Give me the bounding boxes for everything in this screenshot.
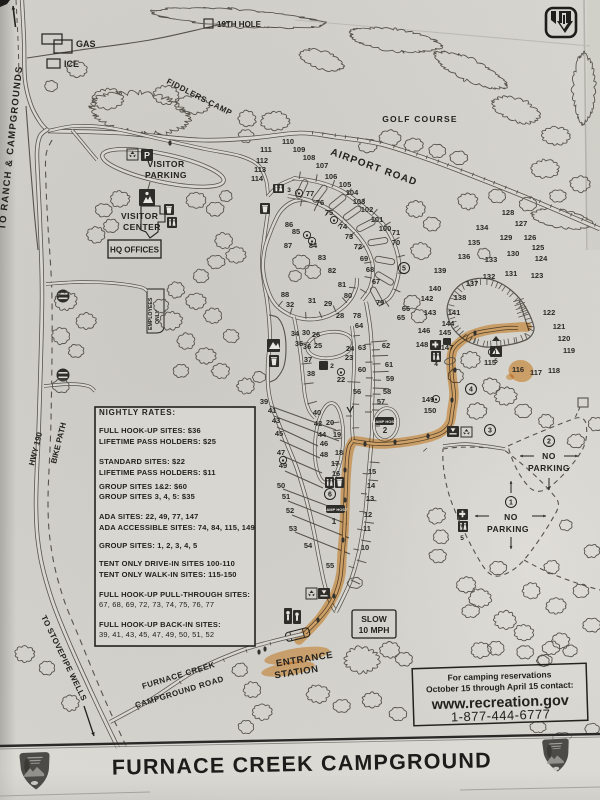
svg-text:66: 66: [402, 304, 410, 313]
svg-text:12: 12: [364, 510, 372, 519]
svg-text:135: 135: [468, 238, 481, 247]
svg-text:137: 137: [466, 279, 479, 288]
svg-text:70: 70: [392, 238, 400, 247]
svg-text:2: 2: [383, 426, 388, 435]
svg-text:116: 116: [512, 365, 524, 374]
svg-text:124: 124: [535, 254, 548, 263]
svg-text:123: 123: [531, 271, 544, 280]
svg-text:32: 32: [286, 300, 294, 309]
svg-text:30: 30: [302, 328, 310, 337]
svg-text:GROUP SITES: 1, 2, 3, 4, 5: GROUP SITES: 1, 2, 3, 4, 5: [99, 541, 197, 550]
svg-text:39, 41, 43, 45, 47, 49, 50, 51: 39, 41, 43, 45, 47, 49, 50, 51, 52: [99, 630, 214, 639]
svg-text:83: 83: [318, 253, 326, 262]
svg-text:GROUP SITES 1&2: $60: GROUP SITES 1&2: $60: [99, 482, 187, 491]
svg-text:144: 144: [442, 319, 455, 328]
svg-text:126: 126: [524, 233, 537, 242]
svg-text:GOLF COURSE: GOLF COURSE: [382, 114, 458, 124]
svg-text:140: 140: [429, 284, 442, 293]
svg-text:143: 143: [424, 308, 437, 317]
svg-text:131: 131: [505, 269, 518, 278]
svg-text:19: 19: [333, 430, 341, 439]
svg-text:10 MPH: 10 MPH: [359, 625, 390, 635]
svg-text:57: 57: [377, 397, 385, 406]
svg-text:69: 69: [360, 254, 368, 263]
svg-text:132: 132: [483, 272, 496, 281]
svg-text:2: 2: [547, 439, 551, 446]
svg-text:138: 138: [454, 293, 467, 302]
svg-text:HQ OFFICES: HQ OFFICES: [110, 246, 160, 255]
svg-text:29: 29: [324, 299, 332, 308]
svg-text:117: 117: [530, 368, 542, 377]
svg-text:71: 71: [392, 228, 400, 237]
svg-text:62: 62: [382, 341, 390, 350]
svg-text:40: 40: [313, 408, 321, 417]
svg-text:112: 112: [256, 156, 268, 165]
svg-text:NO: NO: [542, 451, 556, 461]
svg-text:FULL HOOK-UP BACK-IN SITES:: FULL HOOK-UP BACK-IN SITES:: [99, 620, 221, 629]
svg-text:EMPLOYEES: EMPLOYEES: [148, 297, 154, 330]
svg-text:NIGHTLY RATES:: NIGHTLY RATES:: [99, 408, 176, 417]
svg-text:41: 41: [268, 406, 276, 415]
svg-text:10: 10: [361, 543, 369, 552]
svg-text:128: 128: [502, 208, 515, 217]
svg-text:CAMP HOST: CAMP HOST: [373, 419, 397, 424]
svg-text:121: 121: [553, 322, 566, 331]
svg-text:TENT ONLY WALK-IN SITES: 115-1: TENT ONLY WALK-IN SITES: 115-150: [99, 570, 237, 579]
svg-text:150: 150: [424, 406, 437, 415]
svg-text:108: 108: [303, 153, 316, 162]
svg-text:75: 75: [325, 208, 333, 217]
svg-text:102: 102: [361, 205, 374, 214]
svg-text:1: 1: [332, 517, 337, 526]
svg-text:60: 60: [358, 365, 366, 374]
svg-text:111: 111: [260, 145, 272, 154]
svg-text:84: 84: [309, 241, 318, 250]
svg-text:146: 146: [418, 326, 431, 335]
svg-text:74: 74: [339, 222, 348, 231]
svg-text:47: 47: [277, 448, 285, 457]
svg-text:114: 114: [251, 174, 264, 183]
svg-text:FULL HOOK-UP PULL-THROUGH SITE: FULL HOOK-UP PULL-THROUGH SITES:: [99, 590, 250, 599]
svg-text:48: 48: [320, 450, 328, 459]
svg-text:147: 147: [441, 343, 454, 352]
svg-text:130: 130: [507, 249, 520, 258]
svg-text:67, 68, 69, 72, 73, 74, 75, 76: 67, 68, 69, 72, 73, 74, 75, 76, 77: [99, 600, 214, 609]
svg-text:15: 15: [368, 467, 376, 476]
svg-text:50: 50: [277, 481, 285, 490]
svg-text:VISITOR: VISITOR: [121, 211, 158, 221]
svg-text:136: 136: [458, 252, 471, 261]
svg-text:63: 63: [358, 343, 366, 352]
svg-text:72: 72: [354, 242, 362, 251]
svg-text:3: 3: [488, 428, 492, 435]
svg-text:104: 104: [346, 188, 359, 197]
svg-text:PARKING: PARKING: [528, 463, 570, 473]
svg-text:43: 43: [272, 416, 280, 425]
svg-text:39: 39: [260, 397, 268, 406]
svg-text:139: 139: [434, 266, 447, 275]
svg-text:134: 134: [476, 223, 489, 232]
svg-text:VISITOR: VISITOR: [147, 159, 184, 169]
svg-text:68: 68: [366, 265, 374, 274]
svg-text:NO: NO: [504, 512, 518, 522]
svg-text:107: 107: [316, 161, 329, 170]
svg-text:ONLY: ONLY: [155, 310, 161, 324]
svg-text:51: 51: [282, 492, 290, 501]
svg-text:5: 5: [460, 535, 464, 542]
svg-text:4: 4: [469, 387, 473, 394]
svg-text:22: 22: [337, 375, 345, 384]
svg-text:23: 23: [345, 353, 353, 362]
svg-text:78: 78: [353, 311, 361, 320]
svg-text:16: 16: [332, 469, 340, 478]
svg-text:ADA SITES: 22, 49, 77, 147: ADA SITES: 22, 49, 77, 147: [99, 512, 199, 521]
svg-text:1: 1: [509, 500, 513, 507]
svg-text:73: 73: [345, 232, 353, 241]
svg-text:36: 36: [303, 342, 311, 351]
svg-text:17: 17: [331, 459, 339, 468]
svg-text:67: 67: [372, 277, 380, 286]
svg-text:3: 3: [287, 187, 291, 194]
svg-text:88: 88: [281, 290, 289, 299]
svg-text:106: 106: [325, 172, 338, 181]
svg-text:64: 64: [355, 321, 364, 330]
svg-text:56: 56: [353, 387, 361, 396]
svg-text:STANDARD SITES: $22: STANDARD SITES: $22: [99, 457, 185, 466]
svg-text:115: 115: [484, 358, 496, 367]
svg-text:28: 28: [336, 311, 344, 320]
svg-text:1-877-444-6777: 1-877-444-6777: [451, 706, 551, 724]
svg-text:87: 87: [284, 241, 292, 250]
svg-text:85: 85: [292, 227, 300, 236]
svg-text:24: 24: [346, 344, 355, 353]
svg-text:SLOW: SLOW: [361, 614, 387, 624]
svg-text:101: 101: [371, 215, 384, 224]
svg-text:80: 80: [344, 291, 352, 300]
svg-text:141: 141: [448, 308, 461, 317]
svg-text:14: 14: [367, 481, 376, 490]
svg-text:GROUP SITES 3, 4, 5: $35: GROUP SITES 3, 4, 5: $35: [99, 492, 195, 501]
svg-text:CENTER: CENTER: [123, 222, 161, 232]
svg-text:120: 120: [558, 334, 571, 343]
svg-text:TENT ONLY DRIVE-IN SITES 100-1: TENT ONLY DRIVE-IN SITES 100-110: [99, 559, 235, 568]
svg-text:31: 31: [308, 296, 316, 305]
svg-text:82: 82: [328, 266, 336, 275]
svg-text:ADA ACCESSIBLE SITES: 74, 84,: ADA ACCESSIBLE SITES: 74, 84, 115, 149: [99, 523, 255, 532]
svg-text:53: 53: [289, 524, 297, 533]
svg-text:38: 38: [307, 369, 315, 378]
svg-text:100: 100: [379, 224, 392, 233]
svg-text:148: 148: [416, 340, 429, 349]
svg-text:34: 34: [291, 329, 300, 338]
svg-text:133: 133: [485, 255, 498, 264]
svg-text:59: 59: [386, 374, 394, 383]
svg-text:119: 119: [563, 346, 575, 355]
svg-text:125: 125: [532, 243, 545, 252]
svg-text:44: 44: [318, 430, 327, 439]
svg-text:20: 20: [326, 418, 334, 427]
svg-text:25: 25: [314, 341, 322, 350]
svg-text:122: 122: [543, 308, 556, 317]
svg-text:61: 61: [385, 360, 393, 369]
svg-text:81: 81: [338, 280, 346, 289]
svg-text:42: 42: [314, 419, 322, 428]
svg-text:45: 45: [275, 429, 283, 438]
svg-text:76: 76: [316, 198, 324, 207]
svg-text:PARKING: PARKING: [145, 170, 187, 180]
svg-text:LIFETIME PASS HOLDERS: $11: LIFETIME PASS HOLDERS: $11: [99, 468, 216, 477]
svg-text:77: 77: [306, 189, 314, 198]
svg-text:2: 2: [330, 363, 334, 370]
svg-text:129: 129: [500, 233, 513, 242]
svg-text:18: 18: [335, 448, 343, 457]
svg-text:142: 142: [421, 294, 434, 303]
svg-text:FULL HOOK-UP SITES: $36: FULL HOOK-UP SITES: $36: [99, 426, 201, 435]
svg-text:5: 5: [402, 266, 406, 273]
svg-text:26: 26: [312, 330, 320, 339]
svg-text:58: 58: [383, 387, 391, 396]
svg-text:6: 6: [328, 492, 332, 499]
svg-text:55: 55: [326, 561, 334, 570]
svg-text:CAMP HOST: CAMP HOST: [324, 507, 348, 512]
svg-text:113: 113: [254, 165, 266, 174]
svg-text:52: 52: [286, 506, 294, 515]
svg-text:145: 145: [439, 328, 452, 337]
svg-text:LIFETIME PASS HOLDERS: $25: LIFETIME PASS HOLDERS: $25: [99, 437, 216, 446]
svg-text:PARKING: PARKING: [487, 524, 529, 534]
svg-text:GAS: GAS: [76, 39, 96, 49]
svg-text:37: 37: [304, 355, 312, 364]
svg-text:13: 13: [366, 494, 374, 503]
svg-text:11: 11: [363, 524, 371, 533]
svg-text:54: 54: [304, 541, 313, 550]
svg-text:79: 79: [376, 298, 384, 307]
svg-text:46: 46: [320, 439, 328, 448]
svg-text:127: 127: [515, 219, 528, 228]
svg-text:4: 4: [434, 361, 438, 368]
svg-text:65: 65: [397, 313, 405, 322]
svg-text:118: 118: [548, 366, 560, 375]
